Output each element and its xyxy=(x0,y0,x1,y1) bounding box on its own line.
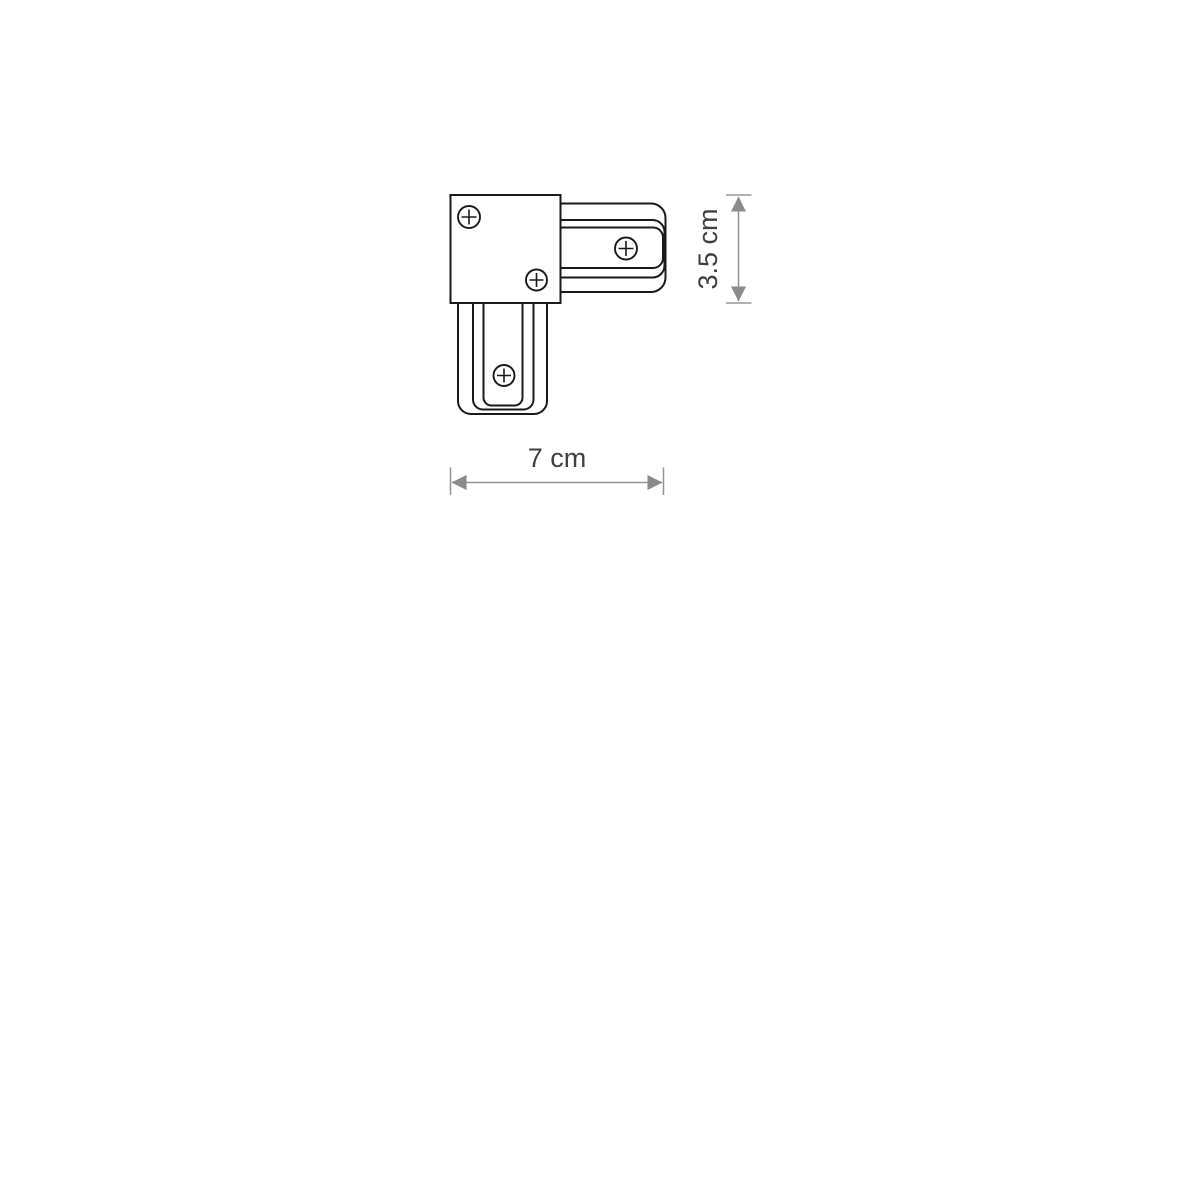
width-dimension: 7 cm xyxy=(451,443,664,495)
bottom-arm-inner-profile xyxy=(484,302,523,406)
width-dimension-label: 7 cm xyxy=(528,443,587,473)
connector-bottom-arm xyxy=(458,302,547,414)
right-arm-inner-profile xyxy=(559,228,663,269)
arrow-up-icon xyxy=(731,197,746,212)
screw-icon xyxy=(526,270,547,291)
screw-icon xyxy=(615,238,637,260)
arrow-right-icon xyxy=(648,475,663,490)
screw-icon xyxy=(494,365,515,386)
arrow-down-icon xyxy=(731,287,746,302)
drawing-canvas: 3.5 cm 7 cm xyxy=(0,0,1200,1200)
connector-right-arm xyxy=(559,204,666,293)
connector-technical-diagram: 3.5 cm 7 cm xyxy=(0,0,1200,1200)
height-dimension-label: 3.5 cm xyxy=(693,208,723,289)
screw-icon xyxy=(458,206,480,228)
connector-body xyxy=(451,195,666,414)
arrow-left-icon xyxy=(452,475,467,490)
height-dimension: 3.5 cm xyxy=(693,195,752,303)
